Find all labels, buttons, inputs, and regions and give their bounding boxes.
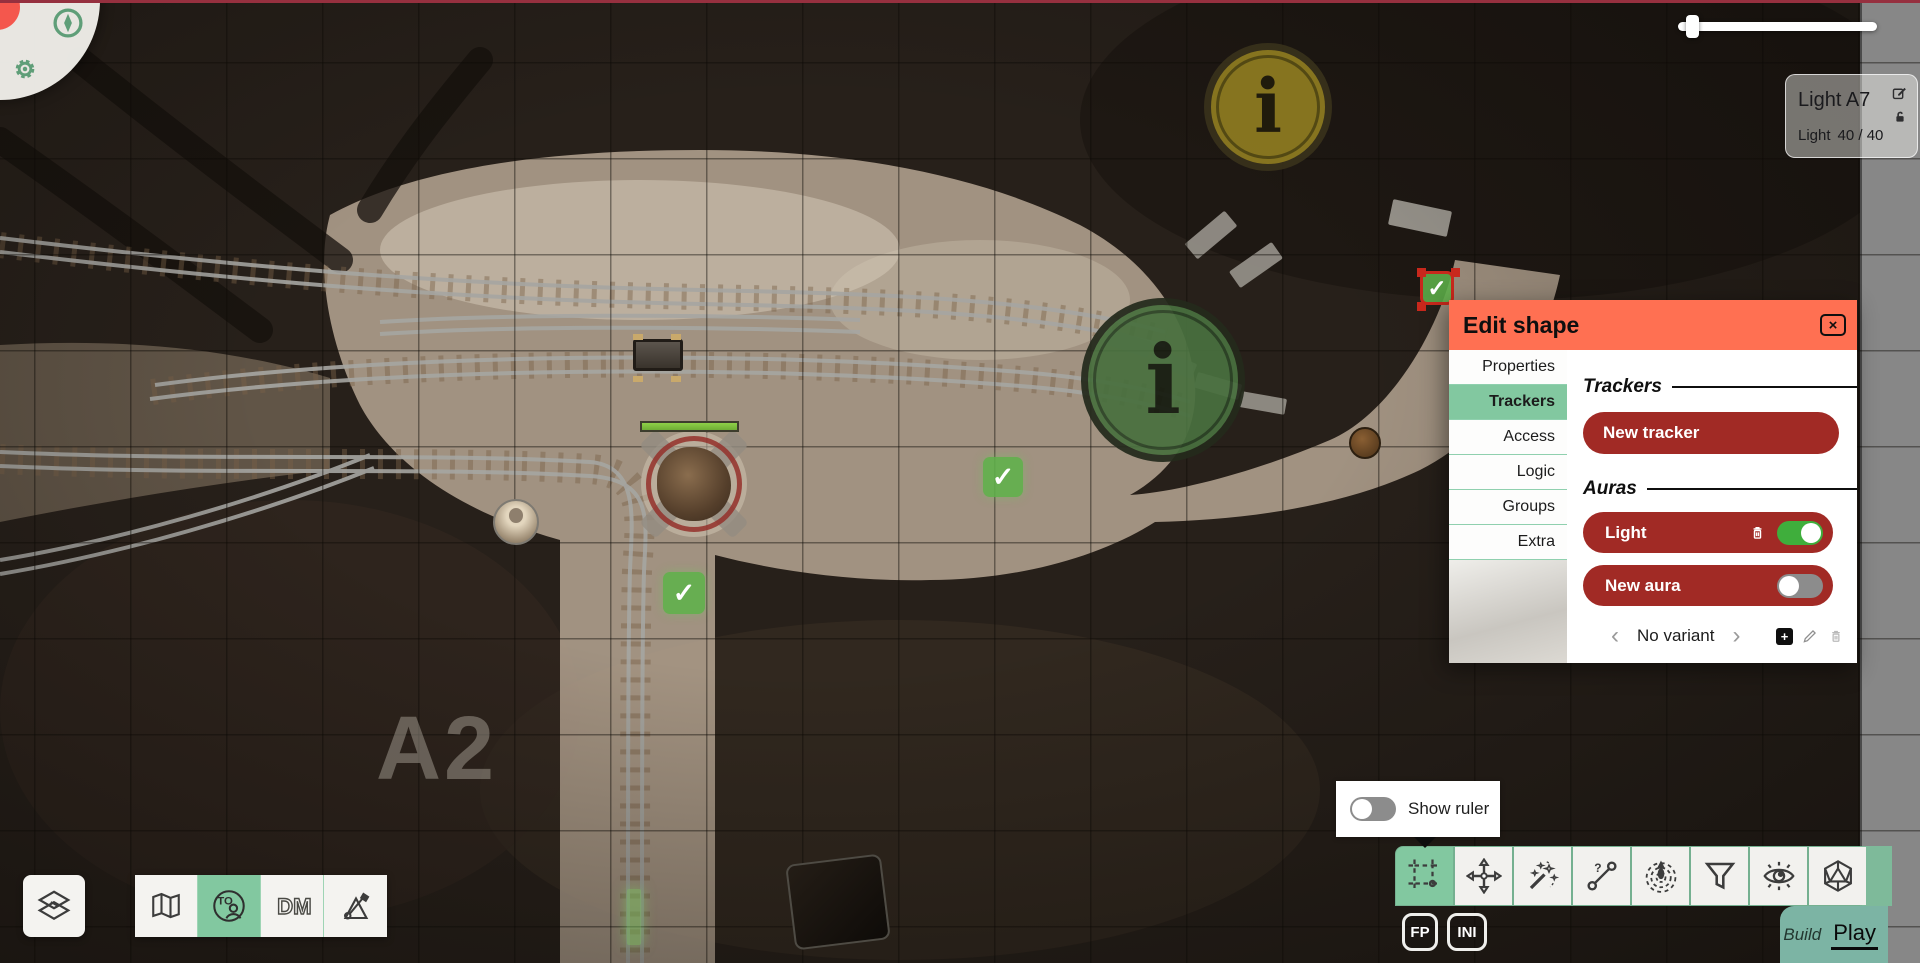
svg-text:DM: DM bbox=[277, 894, 311, 919]
vision-tool-button[interactable] bbox=[1750, 847, 1807, 905]
eye-icon bbox=[1761, 858, 1797, 894]
hp-bar-fill bbox=[642, 423, 737, 430]
info-token[interactable]: i bbox=[1204, 43, 1332, 171]
select-tool-button[interactable] bbox=[1396, 847, 1453, 905]
tool-detail-panel: Show ruler bbox=[1336, 781, 1500, 837]
layer-selector-button[interactable] bbox=[23, 875, 85, 937]
dialog-header[interactable]: Edit shape × bbox=[1449, 300, 1857, 350]
tab-logic[interactable]: Logic bbox=[1449, 455, 1567, 490]
show-ruler-label: Show ruler bbox=[1408, 799, 1489, 819]
zoom-slider[interactable] bbox=[1678, 22, 1877, 31]
creature-token[interactable] bbox=[641, 431, 747, 537]
mode-build-button[interactable]: Build bbox=[1783, 925, 1821, 945]
fp-shortcut-button[interactable]: FP bbox=[1402, 913, 1438, 951]
add-variant-icon[interactable]: + bbox=[1776, 628, 1793, 645]
tab-properties[interactable]: Properties bbox=[1449, 350, 1567, 385]
dialog-title: Edit shape bbox=[1449, 312, 1579, 339]
glow-token[interactable] bbox=[627, 889, 641, 945]
tab-extra[interactable]: Extra bbox=[1449, 525, 1567, 560]
layer-tab-tokens[interactable]: TO bbox=[198, 875, 261, 937]
top-accent-line bbox=[0, 0, 1920, 3]
dialog-tabs: Properties Trackers Access Logic Groups … bbox=[1449, 350, 1567, 663]
svg-text:?: ? bbox=[1594, 861, 1601, 875]
tool-detail-caret bbox=[1414, 837, 1436, 848]
cart-token[interactable] bbox=[633, 339, 683, 371]
variant-label: No variant bbox=[1637, 626, 1714, 646]
tracker-label: Light bbox=[1798, 127, 1831, 144]
ruler-tool-button[interactable]: ? bbox=[1573, 847, 1630, 905]
close-icon[interactable]: × bbox=[1820, 314, 1846, 336]
check-token[interactable]: ✓ bbox=[983, 457, 1023, 497]
new-tracker-button[interactable]: New tracker bbox=[1583, 412, 1839, 454]
portrait-token[interactable] bbox=[493, 499, 539, 545]
d20-dice-icon bbox=[1820, 858, 1856, 894]
tab-groups[interactable]: Groups bbox=[1449, 490, 1567, 525]
dice-tool-button[interactable] bbox=[1809, 847, 1866, 905]
layer-tabs: TO DM bbox=[135, 875, 387, 937]
trackers-panel: Trackers New tracker Auras Light New aur… bbox=[1567, 350, 1857, 663]
check-token[interactable]: ✓ bbox=[663, 572, 705, 614]
aura-row-new[interactable]: New aura bbox=[1583, 565, 1833, 606]
selection-title: Light A7 bbox=[1798, 89, 1870, 112]
pencil-icon[interactable] bbox=[1801, 627, 1819, 645]
trackers-heading: Trackers bbox=[1583, 376, 1857, 398]
spell-tool-button[interactable] bbox=[1514, 847, 1571, 905]
variant-row: ‹ No variant › + bbox=[1583, 622, 1857, 650]
selection-info-panel: Light A7 Light 40 / 40 bbox=[1785, 74, 1918, 158]
hp-bar bbox=[640, 421, 739, 432]
tracker-value: 40 / 40 bbox=[1838, 127, 1884, 144]
mode-switcher: Build Play bbox=[1780, 906, 1888, 963]
ping-icon bbox=[1643, 858, 1679, 894]
layer-tab-map[interactable] bbox=[135, 875, 198, 937]
dm-icon: DM bbox=[273, 887, 311, 925]
draw-icon bbox=[338, 888, 374, 924]
aura-name: New aura bbox=[1605, 576, 1681, 596]
filter-icon bbox=[1702, 858, 1738, 894]
info-token[interactable]: i bbox=[1081, 298, 1245, 462]
initiative-button[interactable]: INI bbox=[1447, 913, 1487, 951]
pan-icon bbox=[1466, 858, 1502, 894]
layer-tab-draw[interactable] bbox=[324, 875, 387, 937]
tab-access[interactable]: Access bbox=[1449, 420, 1567, 455]
mode-play-button[interactable]: Play bbox=[1831, 920, 1878, 950]
aura-name: Light bbox=[1605, 523, 1647, 543]
chevron-right-icon[interactable]: › bbox=[1732, 622, 1740, 650]
tab-trackers[interactable]: Trackers bbox=[1449, 385, 1567, 420]
gear-icon[interactable] bbox=[11, 55, 39, 88]
edit-shape-dialog: Edit shape × Properties Trackers Access … bbox=[1449, 300, 1857, 663]
aura-toggle[interactable] bbox=[1777, 521, 1823, 545]
magic-wand-icon bbox=[1525, 858, 1561, 894]
tokens-icon: TO bbox=[210, 887, 248, 925]
show-ruler-toggle[interactable] bbox=[1350, 797, 1396, 821]
filter-tool-button[interactable] bbox=[1691, 847, 1748, 905]
tool-bar: ? bbox=[1395, 846, 1892, 906]
trash-icon[interactable] bbox=[1748, 523, 1767, 542]
ping-tool-button[interactable] bbox=[1632, 847, 1689, 905]
auras-heading: Auras bbox=[1583, 478, 1857, 500]
aura-toggle[interactable] bbox=[1777, 574, 1823, 598]
layers-icon bbox=[35, 887, 73, 925]
compass-icon[interactable] bbox=[50, 5, 86, 46]
chevron-left-icon[interactable]: ‹ bbox=[1611, 622, 1619, 650]
zoom-slider-handle[interactable] bbox=[1686, 15, 1699, 38]
dot-token[interactable] bbox=[1349, 427, 1381, 459]
layer-tab-dm[interactable]: DM bbox=[261, 875, 324, 937]
select-icon bbox=[1407, 858, 1443, 894]
map-icon bbox=[148, 888, 184, 924]
wagon-token[interactable] bbox=[785, 853, 891, 950]
ruler-icon: ? bbox=[1584, 858, 1620, 894]
tab-filler bbox=[1449, 560, 1567, 663]
edit-icon[interactable] bbox=[1891, 85, 1908, 107]
aura-row-light[interactable]: Light bbox=[1583, 512, 1833, 553]
lock-open-icon[interactable] bbox=[1892, 109, 1908, 130]
trash-icon[interactable] bbox=[1827, 627, 1845, 645]
pan-tool-button[interactable] bbox=[1455, 847, 1512, 905]
